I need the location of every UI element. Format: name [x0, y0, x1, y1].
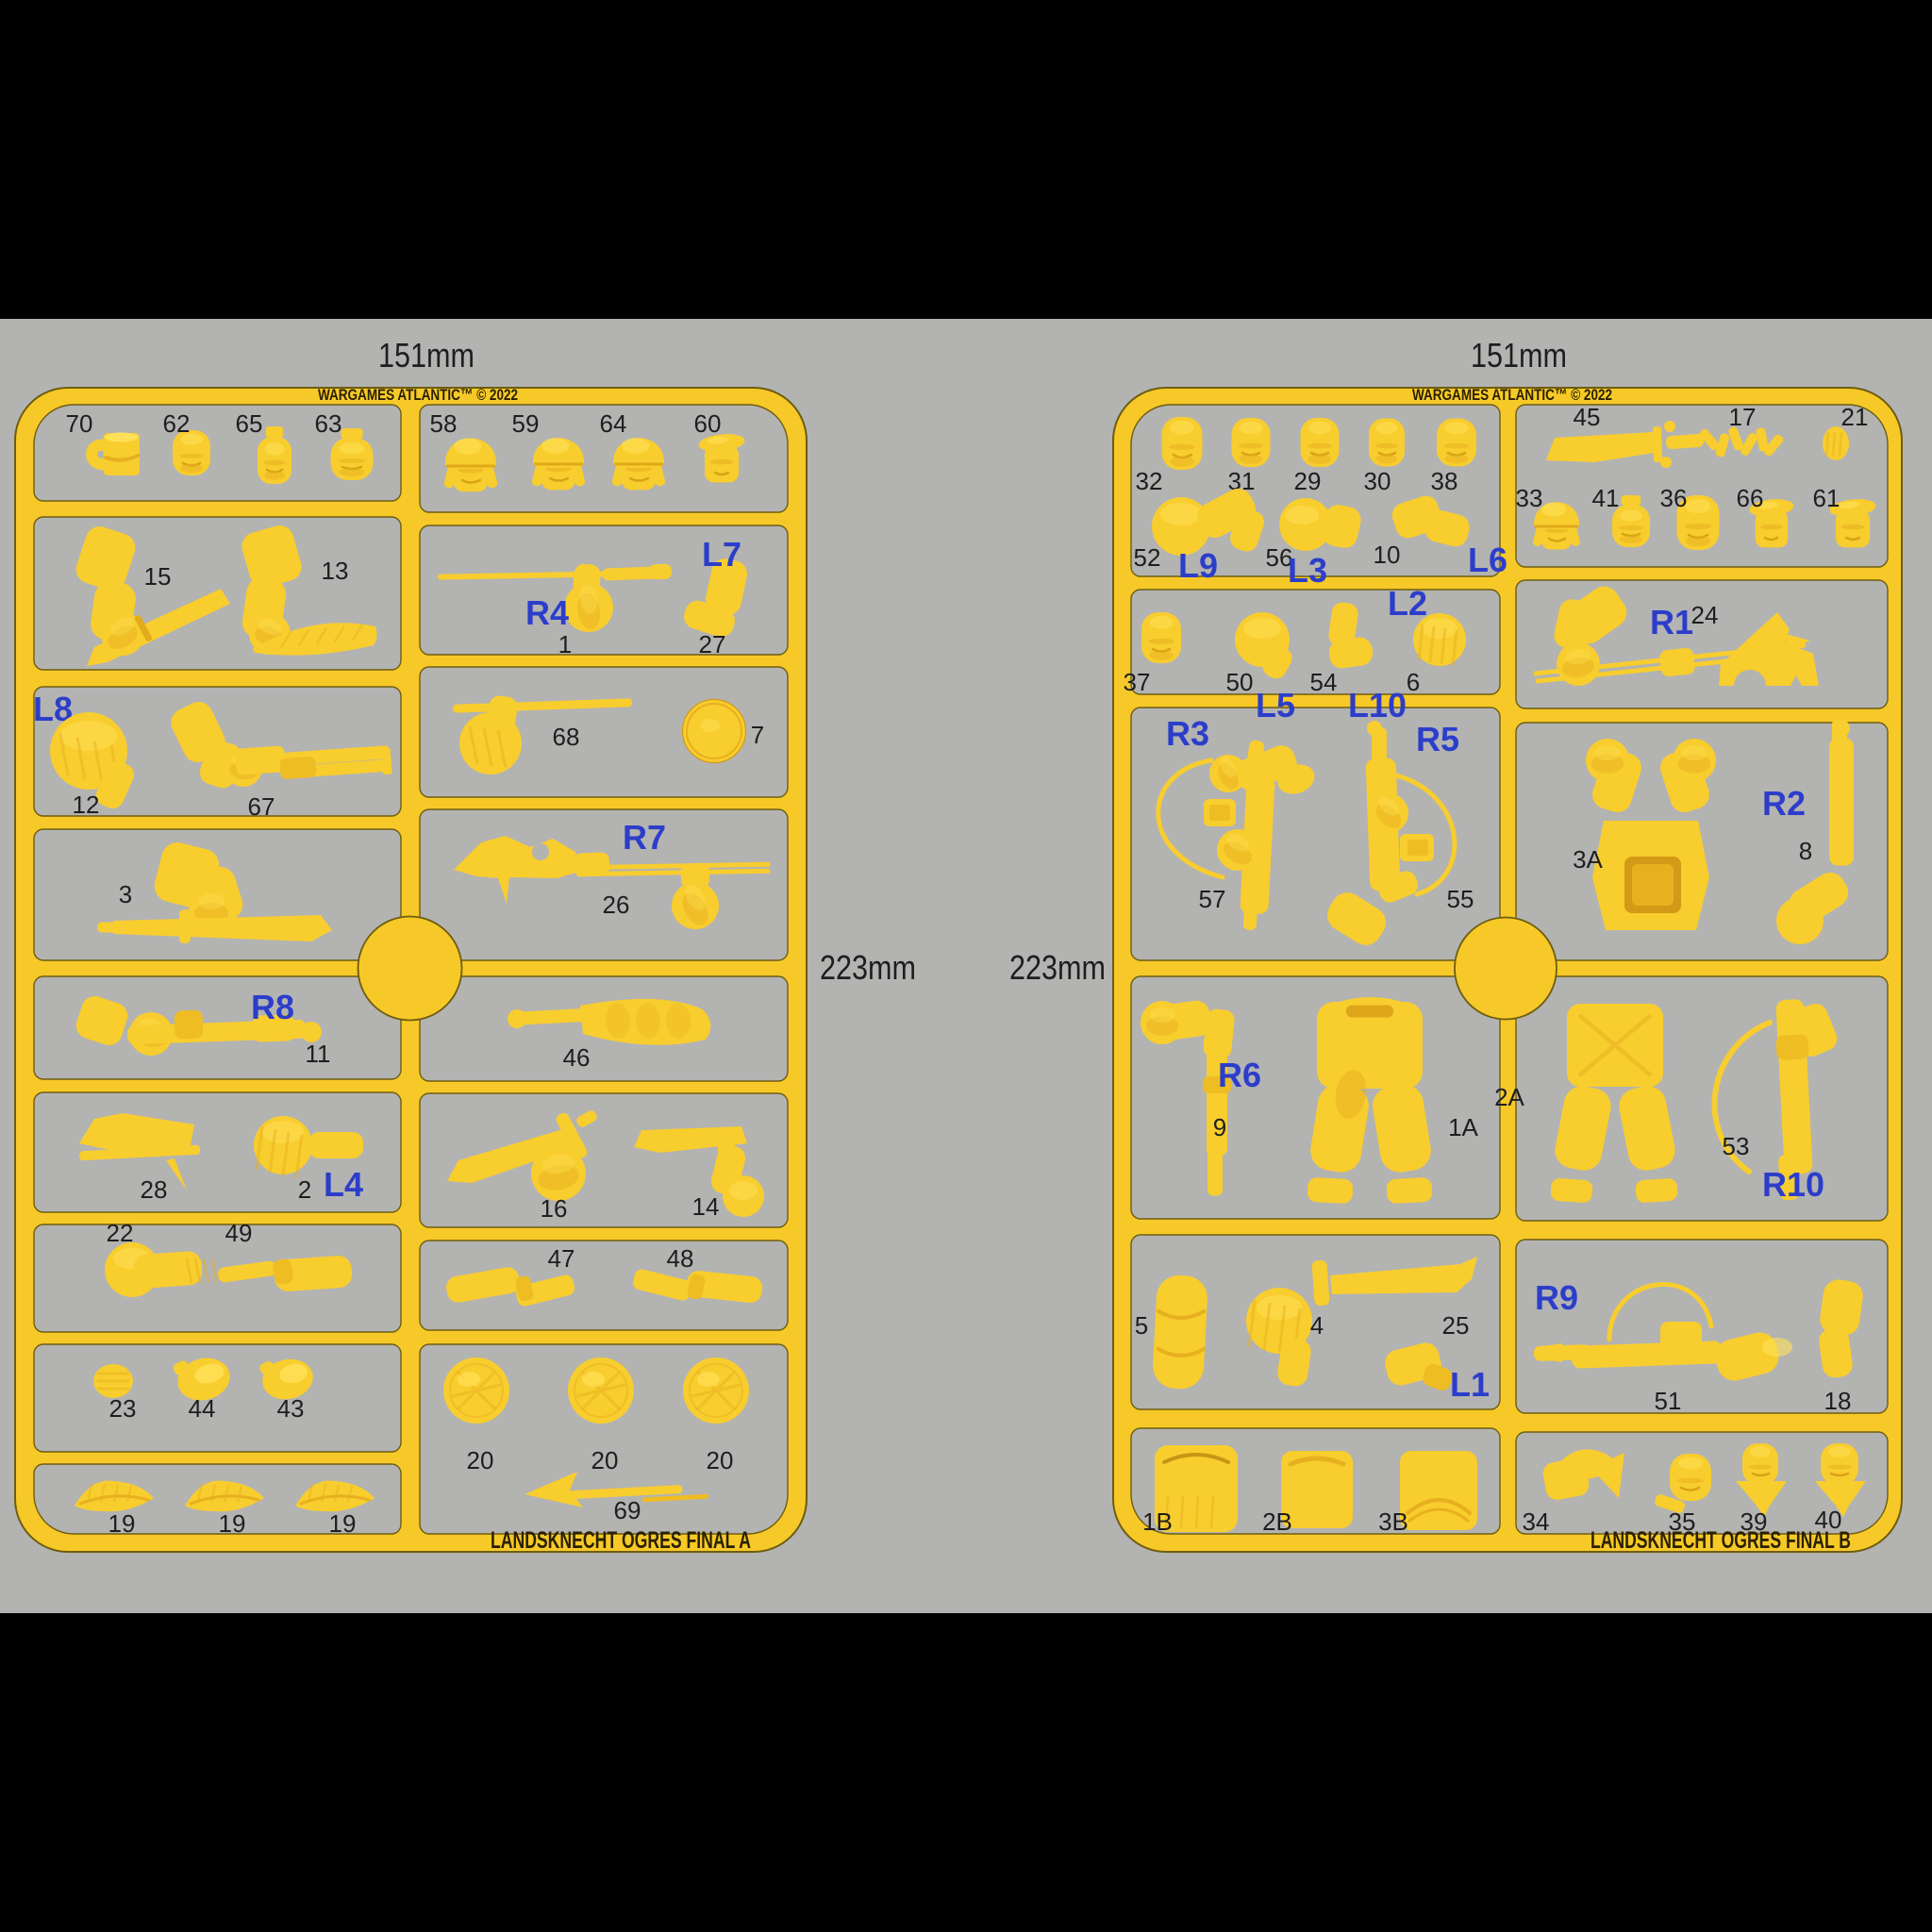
svg-text:R4: R4 [525, 593, 569, 632]
svg-text:18: 18 [1824, 1387, 1852, 1415]
svg-text:28: 28 [141, 1175, 168, 1204]
svg-text:10: 10 [1374, 541, 1401, 569]
svg-text:30: 30 [1364, 467, 1391, 495]
svg-text:LANDSKNECHT OGRES FINAL A: LANDSKNECHT OGRES FINAL A [491, 1527, 751, 1554]
svg-text:15: 15 [144, 562, 172, 591]
svg-text:R7: R7 [623, 818, 666, 857]
svg-text:33: 33 [1516, 484, 1543, 512]
svg-text:32: 32 [1136, 467, 1163, 495]
svg-text:13: 13 [322, 557, 349, 585]
svg-text:19: 19 [329, 1509, 357, 1538]
svg-text:L5: L5 [1256, 686, 1295, 724]
svg-text:45: 45 [1574, 403, 1601, 431]
svg-text:R6: R6 [1218, 1056, 1261, 1094]
svg-text:1A: 1A [1448, 1113, 1478, 1141]
svg-text:26: 26 [603, 891, 630, 919]
svg-text:24: 24 [1691, 601, 1719, 629]
svg-text:12: 12 [73, 791, 100, 819]
svg-text:19: 19 [219, 1509, 246, 1538]
svg-text:21: 21 [1841, 403, 1869, 431]
svg-text:R10: R10 [1762, 1165, 1824, 1204]
svg-text:L1: L1 [1450, 1365, 1490, 1404]
svg-text:L2: L2 [1388, 584, 1427, 623]
svg-text:17: 17 [1729, 403, 1757, 431]
svg-text:38: 38 [1431, 467, 1458, 495]
svg-text:63: 63 [315, 409, 342, 438]
svg-text:L9: L9 [1178, 546, 1218, 585]
svg-text:35: 35 [1669, 1507, 1696, 1536]
svg-text:66: 66 [1737, 484, 1764, 512]
svg-text:223mm: 223mm [1009, 948, 1106, 987]
svg-text:53: 53 [1723, 1132, 1750, 1160]
svg-text:34: 34 [1523, 1507, 1550, 1536]
svg-text:R3: R3 [1166, 714, 1209, 753]
svg-text:R8: R8 [251, 988, 294, 1026]
svg-text:L4: L4 [324, 1165, 363, 1204]
svg-text:20: 20 [467, 1446, 494, 1474]
svg-text:22: 22 [107, 1219, 134, 1247]
svg-text:3B: 3B [1378, 1507, 1408, 1536]
svg-text:51: 51 [1655, 1387, 1682, 1415]
svg-text:41: 41 [1592, 484, 1620, 512]
svg-text:55: 55 [1447, 885, 1474, 913]
svg-text:151mm: 151mm [378, 336, 475, 375]
svg-text:29: 29 [1294, 467, 1322, 495]
svg-text:9: 9 [1213, 1113, 1226, 1141]
svg-text:11: 11 [306, 1040, 331, 1068]
svg-text:59: 59 [512, 409, 540, 438]
svg-text:1: 1 [558, 630, 572, 658]
svg-text:70: 70 [66, 409, 93, 438]
svg-text:48: 48 [667, 1244, 694, 1273]
svg-text:3A: 3A [1573, 845, 1603, 874]
svg-text:54: 54 [1310, 668, 1338, 696]
svg-text:58: 58 [430, 409, 458, 438]
svg-text:4: 4 [1310, 1311, 1324, 1340]
svg-text:23: 23 [109, 1394, 137, 1423]
svg-text:68: 68 [553, 723, 580, 751]
svg-text:43: 43 [277, 1394, 305, 1423]
svg-text:57: 57 [1199, 885, 1226, 913]
svg-text:20: 20 [591, 1446, 619, 1474]
svg-text:6: 6 [1407, 668, 1420, 696]
svg-text:R2: R2 [1762, 784, 1806, 823]
svg-text:39: 39 [1740, 1507, 1768, 1536]
svg-text:67: 67 [248, 792, 275, 821]
svg-text:223mm: 223mm [820, 948, 916, 987]
svg-text:49: 49 [225, 1219, 253, 1247]
svg-text:L7: L7 [702, 535, 741, 574]
svg-text:25: 25 [1442, 1311, 1470, 1340]
svg-text:3: 3 [119, 880, 132, 908]
svg-text:WARGAMES ATLANTIC™ © 2022: WARGAMES ATLANTIC™ © 2022 [318, 386, 518, 404]
svg-text:27: 27 [699, 630, 726, 658]
svg-text:46: 46 [563, 1043, 591, 1072]
svg-text:1B: 1B [1142, 1507, 1173, 1536]
svg-text:R5: R5 [1416, 720, 1459, 758]
svg-text:65: 65 [236, 409, 263, 438]
svg-text:5: 5 [1135, 1311, 1148, 1340]
svg-text:64: 64 [600, 409, 627, 438]
svg-text:69: 69 [614, 1496, 641, 1524]
svg-text:2B: 2B [1262, 1507, 1292, 1536]
svg-text:7: 7 [751, 721, 764, 749]
svg-text:50: 50 [1226, 668, 1254, 696]
svg-text:47: 47 [548, 1244, 575, 1273]
svg-text:36: 36 [1660, 484, 1688, 512]
svg-text:60: 60 [694, 409, 722, 438]
svg-text:L6: L6 [1468, 541, 1507, 579]
svg-text:61: 61 [1813, 484, 1840, 512]
svg-text:44: 44 [189, 1394, 216, 1423]
svg-text:R9: R9 [1535, 1278, 1578, 1317]
svg-text:14: 14 [692, 1192, 720, 1221]
svg-text:20: 20 [707, 1446, 734, 1474]
svg-text:R1: R1 [1650, 603, 1693, 641]
svg-text:2: 2 [298, 1175, 311, 1204]
svg-text:8: 8 [1799, 837, 1812, 865]
svg-text:LANDSKNECHT OGRES FINAL B: LANDSKNECHT OGRES FINAL B [1591, 1527, 1851, 1554]
svg-text:L10: L10 [1348, 686, 1407, 724]
svg-text:16: 16 [541, 1194, 568, 1223]
svg-text:52: 52 [1134, 543, 1161, 572]
svg-text:L3: L3 [1288, 551, 1327, 590]
svg-text:62: 62 [163, 409, 191, 438]
svg-text:151mm: 151mm [1471, 336, 1567, 375]
svg-text:19: 19 [108, 1509, 136, 1538]
svg-text:40: 40 [1815, 1506, 1842, 1534]
svg-text:2A: 2A [1494, 1083, 1524, 1111]
svg-text:37: 37 [1124, 668, 1151, 696]
svg-text:WARGAMES ATLANTIC™ © 2022: WARGAMES ATLANTIC™ © 2022 [1412, 386, 1612, 404]
